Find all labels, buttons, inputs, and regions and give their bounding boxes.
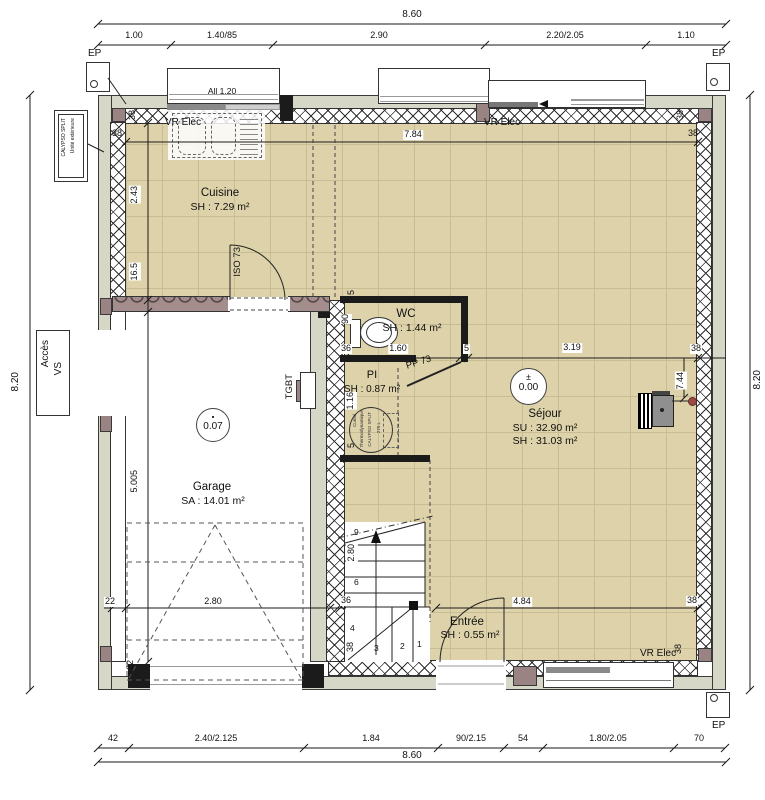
thresholds [438,666,504,684]
dim-22: 22 [104,597,116,607]
dim-38: 38 [676,110,686,120]
dim-165: 16.5 [129,263,141,281]
dim-entree-width: 4.84 [512,597,532,607]
dim-garage-width: 2.80 [203,597,223,607]
dim-bottom: 2.40/2.125 [195,734,238,744]
room-su-sejour: SU : 32.90 m² [513,423,578,435]
dim-left: 8.20 [10,372,21,391]
dim-38: 38 [690,344,702,354]
door-label-iso: ISO 73 [233,247,243,277]
dim-38: 38 [345,642,357,652]
dim-bottom: 90/2.15 [456,734,486,744]
stair-step-number: 3 [374,644,379,653]
floor-plan: Accès VS CALYPSO SPLIT Unité extérieure … [0,0,765,800]
dim-38: 38 [674,644,684,654]
doors-and-stairs [88,78,688,662]
vr-elec-label: VR Elec [484,117,520,128]
room-name-sejour: Séjour [528,408,561,421]
room-sh-sejour: SH : 31.03 m² [513,436,578,448]
room-name-garage: Garage [193,481,231,494]
dim-bottom: 54 [518,734,528,744]
dim-cuisine-h: 2.43 [129,186,141,204]
dim-top: 1.00 [125,31,143,41]
dim-bottom-overall: 8.60 [401,750,422,761]
vr-elec-label: VR Elec [640,648,676,659]
tgbt-label: TGBT [285,374,295,399]
dim-top-overall: 8.60 [402,9,421,20]
stair-step-number: 2 [400,642,405,651]
dim-5: 5 [347,290,357,295]
room-area-wc: SH : 1.44 m² [383,323,442,335]
dim-interior-width: 7.84 [403,130,423,140]
dim-38: 38 [688,129,698,139]
dim-38: 38 [112,129,122,139]
dim-wc-width: 1.60 [388,344,408,354]
dim-sejour-width: 3.19 [562,343,582,353]
dim-22: 22 [126,660,136,670]
dim-garage-h: 5.005 [129,470,141,493]
dim-bottom: 1.84 [362,734,380,744]
stair-arrow [371,530,418,610]
room-area-entree: SH : 0.55 m² [441,630,500,642]
stair-step-number: 4 [350,624,355,633]
ep-label: EP [88,48,101,59]
room-area-cuisine: SH : 7.29 m² [191,202,250,214]
room-name-wc: WC [396,308,415,321]
dim-stair-height: 2.80 [346,544,358,562]
dim-5: 5 [463,344,470,354]
dim-top: 2.90 [370,31,388,41]
stair-step-number: 9 [354,528,359,537]
dim-right: 8.20 [752,370,763,389]
stair-step-number: 1 [417,640,422,649]
dim-bottom: 70 [694,734,704,744]
vr-elec-label: VR Elec [165,117,201,128]
dim-top: 1.10 [677,31,695,41]
dim-5: 5 [347,443,357,448]
dim-bottom: 1.80/2.05 [589,734,627,744]
stair-cut-line [338,516,433,538]
room-area-garage: SA : 14.01 m² [181,496,245,508]
plan-linework [0,0,765,800]
dim-36: 36 [340,344,352,354]
dim-bottom: 42 [108,734,118,744]
room-area-pi: SH : 0.87 m² [344,384,400,395]
dim-36: 36 [340,596,352,606]
dim-top: 1.40/85 [207,31,237,41]
dim-wc-depth: 90 [340,314,352,324]
ep-label: EP [712,48,725,59]
dim-38: 38 [128,110,138,120]
dim-top: 2.20/2.05 [546,31,584,41]
dim-38: 38 [686,596,698,606]
overhead-dashed-lines [230,118,430,622]
dim-stove: 7.44 [675,372,687,390]
allege-label: All 1.20 [208,87,236,96]
room-name-pi: PI [367,369,377,381]
room-name-entree: Entrée [450,616,484,629]
ep-label: EP [712,720,725,731]
room-name-cuisine: Cuisine [201,187,239,200]
stair-step-number: 6 [354,578,359,587]
